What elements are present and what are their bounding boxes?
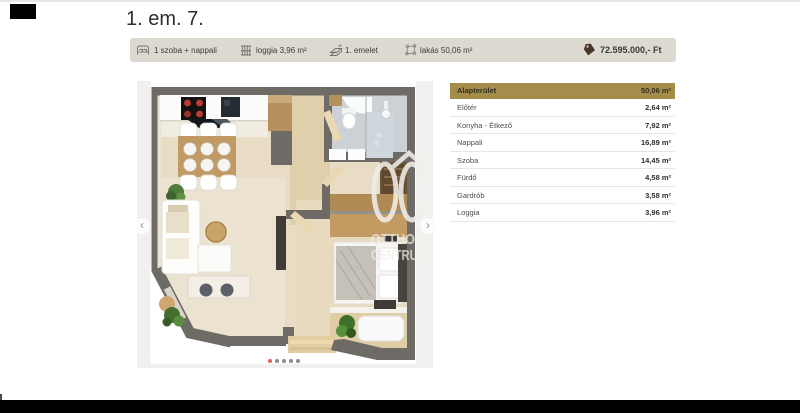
svg-text:CENTRUM: CENTRUM [371,247,427,264]
svg-text:OTTHON: OTTHON [371,231,424,248]
